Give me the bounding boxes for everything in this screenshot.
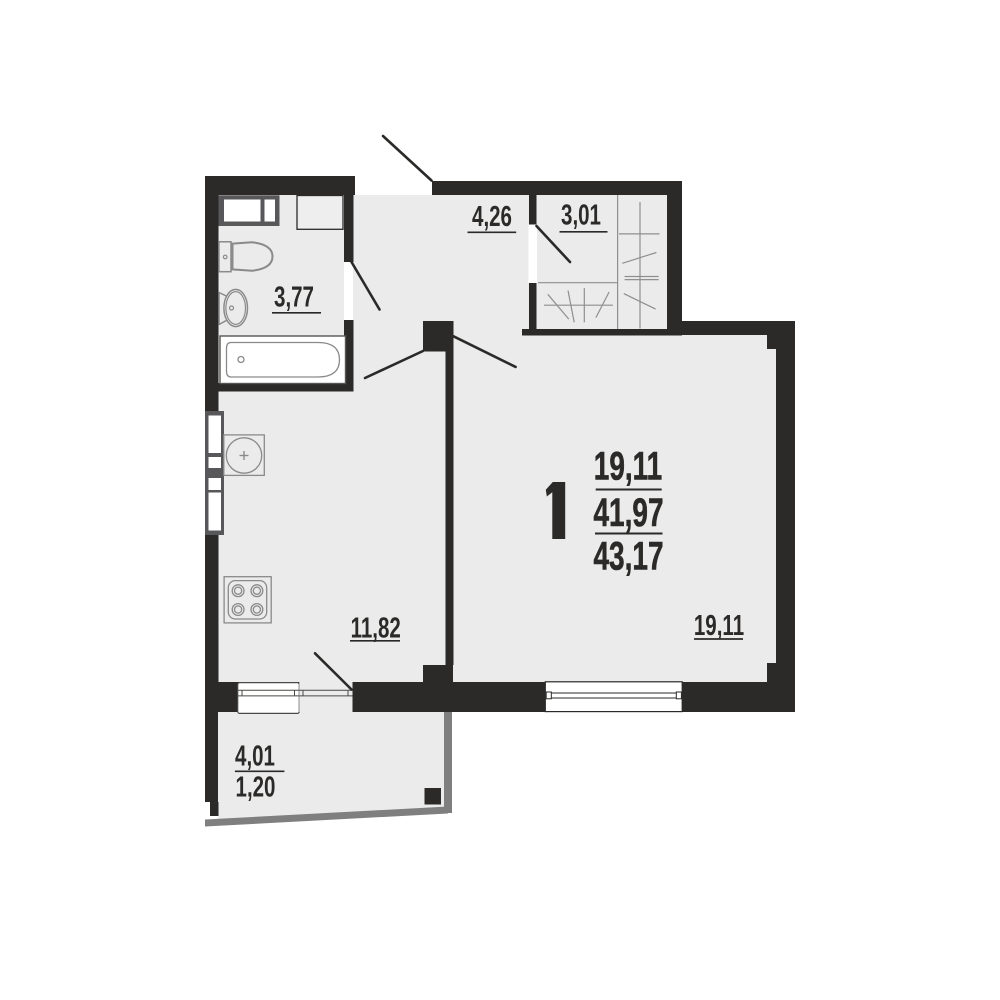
svg-text:3,77: 3,77 (274, 282, 314, 313)
svg-text:19,11: 19,11 (594, 445, 663, 489)
svg-text:4,26: 4,26 (472, 202, 512, 233)
svg-text:4,01: 4,01 (235, 741, 275, 772)
svg-text:11,82: 11,82 (351, 613, 401, 644)
svg-text:43,17: 43,17 (593, 535, 663, 579)
svg-text:3,01: 3,01 (561, 200, 601, 231)
svg-text:1,20: 1,20 (236, 772, 276, 803)
svg-text:41,97: 41,97 (593, 491, 663, 535)
svg-text:19,11: 19,11 (694, 611, 744, 642)
